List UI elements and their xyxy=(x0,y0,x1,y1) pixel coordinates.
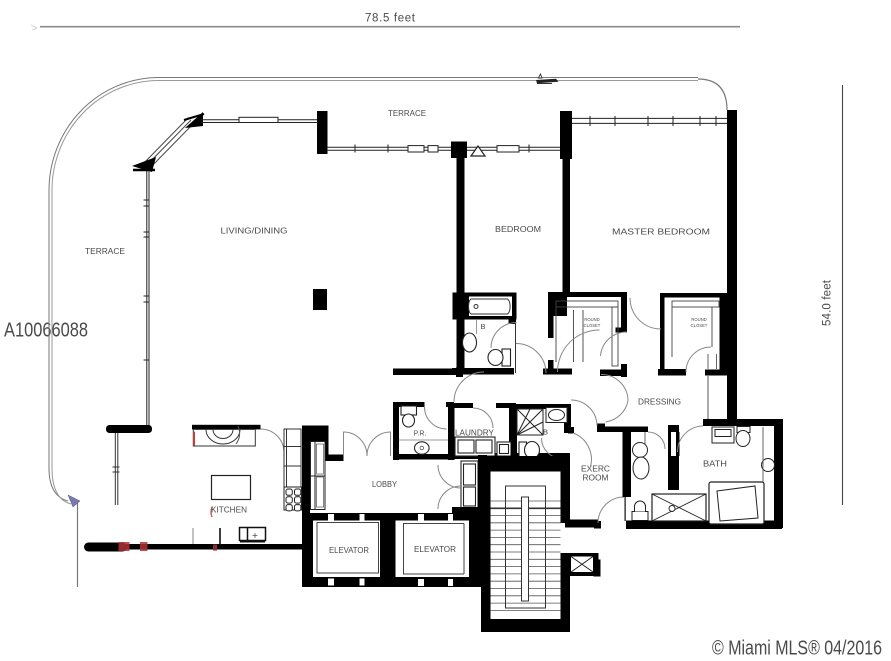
svg-text:B: B xyxy=(480,322,485,331)
svg-text:ELEVATOR: ELEVATOR xyxy=(414,544,456,554)
svg-text:MASTER BEDROOM: MASTER BEDROOM xyxy=(612,227,710,237)
svg-text:KITCHEN: KITCHEN xyxy=(211,505,247,515)
svg-text:ROOM: ROOM xyxy=(583,473,609,483)
svg-text:TERRACE: TERRACE xyxy=(388,108,426,118)
svg-text:54.0 feet: 54.0 feet xyxy=(822,279,834,326)
svg-text:TERRACE: TERRACE xyxy=(85,246,125,256)
svg-text:LIVING/DINING: LIVING/DINING xyxy=(221,226,288,236)
svg-text:© Miami MLS® 04/2016: © Miami MLS® 04/2016 xyxy=(712,638,882,660)
svg-text:ROUND: ROUND xyxy=(584,317,599,322)
svg-text:BEDROOM: BEDROOM xyxy=(495,224,541,234)
svg-text:DRESSING: DRESSING xyxy=(638,397,681,407)
svg-text:78.5 feet: 78.5 feet xyxy=(365,13,416,25)
svg-text:ELEVATOR: ELEVATOR xyxy=(329,545,369,555)
svg-text:BATH: BATH xyxy=(703,459,727,469)
svg-text:ROUND: ROUND xyxy=(691,317,706,322)
svg-text:CLOSET: CLOSET xyxy=(691,323,708,328)
svg-text:A10066088: A10066088 xyxy=(4,320,88,342)
svg-text:LAUNDRY: LAUNDRY xyxy=(455,428,494,438)
svg-text:B: B xyxy=(543,428,548,437)
svg-text:P.R.: P.R. xyxy=(414,431,427,438)
svg-text:LOBBY: LOBBY xyxy=(372,479,397,489)
svg-text:CLOSET: CLOSET xyxy=(584,323,601,328)
